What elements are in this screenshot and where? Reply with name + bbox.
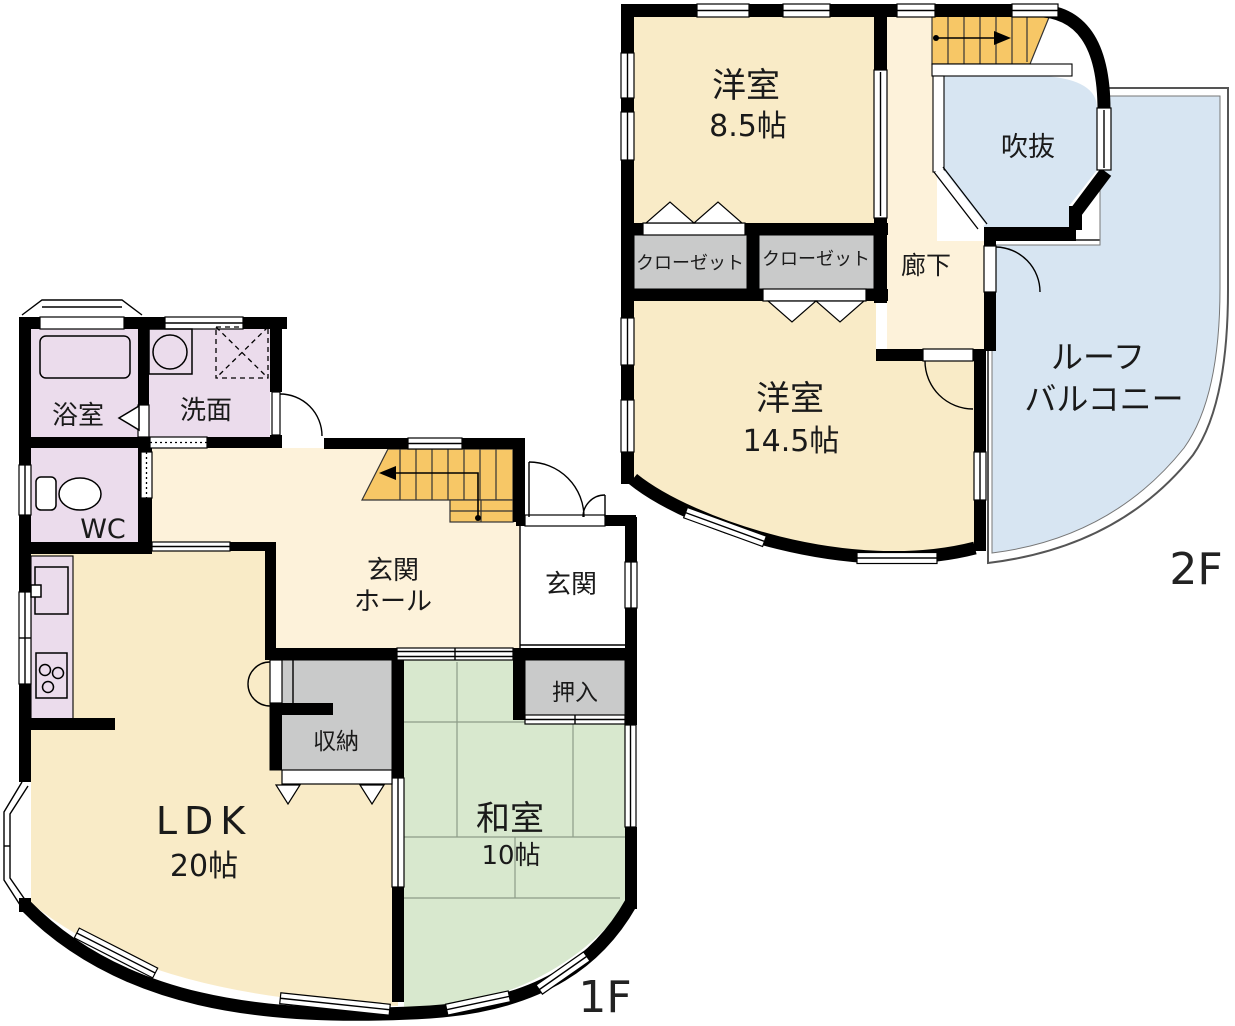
entrance-door-arc bbox=[529, 462, 584, 517]
bay-window-ldk bbox=[4, 782, 28, 908]
wc-label: WC bbox=[80, 514, 126, 545]
closet-left-label: クローゼット bbox=[636, 253, 744, 274]
floor-label-2f: 2F bbox=[1169, 544, 1222, 595]
ldk-label: LDK bbox=[156, 799, 252, 843]
roof-balcony-label-line1: ルーフ bbox=[1051, 338, 1145, 376]
stairs-2f bbox=[932, 10, 1072, 76]
washroom-door-arc bbox=[280, 394, 322, 436]
room-145-size: 14.5帖 bbox=[743, 424, 840, 459]
washroom-label: 洗面 bbox=[180, 396, 232, 426]
floor-plan-drawing: 洋室 8.5帖 クローゼット クローゼット 廊下 吹抜 洋室 14.5帖 ルーフ… bbox=[0, 0, 1235, 1026]
entrance-hall-label-line2: ホール bbox=[354, 587, 432, 617]
room-85-size: 8.5帖 bbox=[709, 109, 787, 144]
oshiire-label: 押入 bbox=[552, 680, 598, 706]
room-145-label: 洋室 bbox=[756, 379, 824, 419]
entrance-child-door-arc bbox=[583, 495, 605, 517]
closet-right-label: クローゼット bbox=[762, 249, 870, 270]
entrance-label: 玄関 bbox=[545, 570, 597, 600]
storage-label: 収納 bbox=[313, 729, 359, 755]
bay-window-bathroom bbox=[22, 300, 142, 329]
washitsu-size: 10帖 bbox=[481, 841, 540, 871]
entrance-hall-label-line1: 玄関 bbox=[367, 556, 419, 586]
bathroom-label: 浴室 bbox=[52, 401, 104, 431]
void-railing-top bbox=[932, 64, 1072, 76]
toilet-icon bbox=[36, 477, 101, 510]
hallway-label: 廊下 bbox=[901, 251, 951, 280]
floor-label-1f: 1F bbox=[578, 972, 631, 1023]
floor-2f-plan: 洋室 8.5帖 クローゼット クローゼット 廊下 吹抜 洋室 14.5帖 ルーフ… bbox=[621, 4, 1228, 595]
floor-plan-page: 洋室 8.5帖 クローゼット クローゼット 廊下 吹抜 洋室 14.5帖 ルーフ… bbox=[0, 0, 1235, 1026]
ldk-size: 20帖 bbox=[170, 849, 238, 884]
room-85-label: 洋室 bbox=[712, 66, 780, 106]
floor-1f-plan: 浴室 洗面 WC 玄関 ホール 玄関 押入 収納 LDK 20帖 和室 10帖 … bbox=[4, 300, 637, 1023]
washitsu-label: 和室 bbox=[476, 799, 544, 839]
roof-balcony-label-line2: バルコニー bbox=[1024, 380, 1183, 418]
void-label: 吹抜 bbox=[1001, 132, 1055, 163]
